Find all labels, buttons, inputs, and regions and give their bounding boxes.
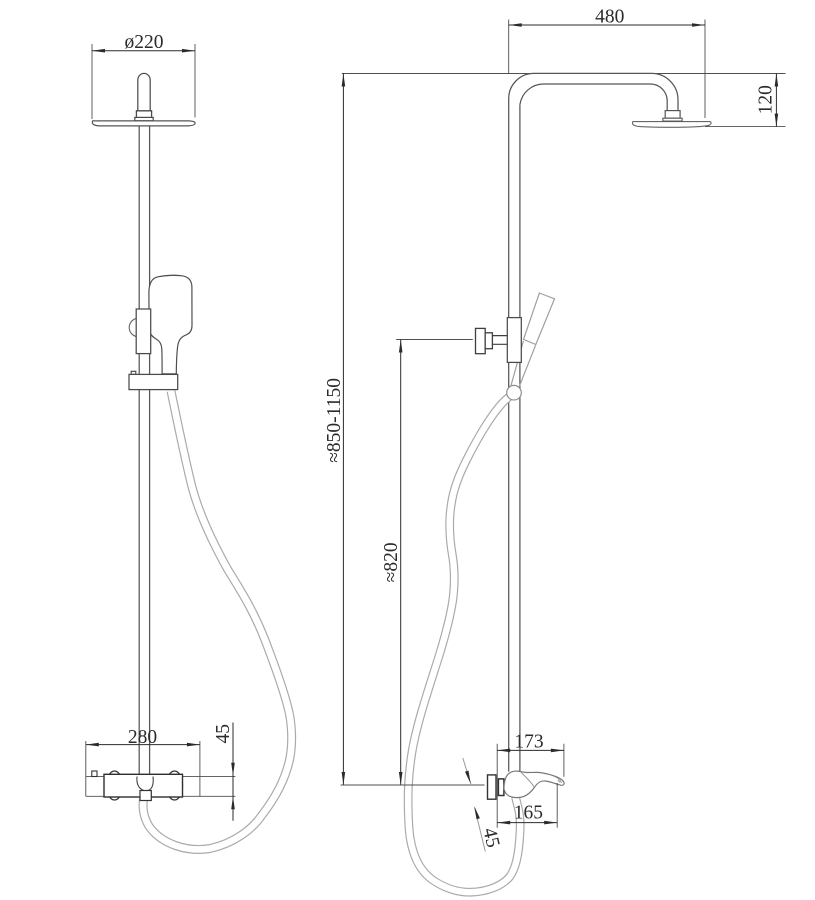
svg-text:280: 280 [128,727,157,748]
svg-text:≈820: ≈820 [381,542,402,582]
svg-text:ø220: ø220 [125,32,164,53]
svg-text:480: 480 [595,6,624,27]
svg-text:165: 165 [514,802,543,823]
svg-text:120: 120 [755,85,776,114]
svg-text:≈850-1150: ≈850-1150 [324,378,345,463]
svg-text:45: 45 [213,724,234,744]
svg-text:173: 173 [514,731,543,752]
